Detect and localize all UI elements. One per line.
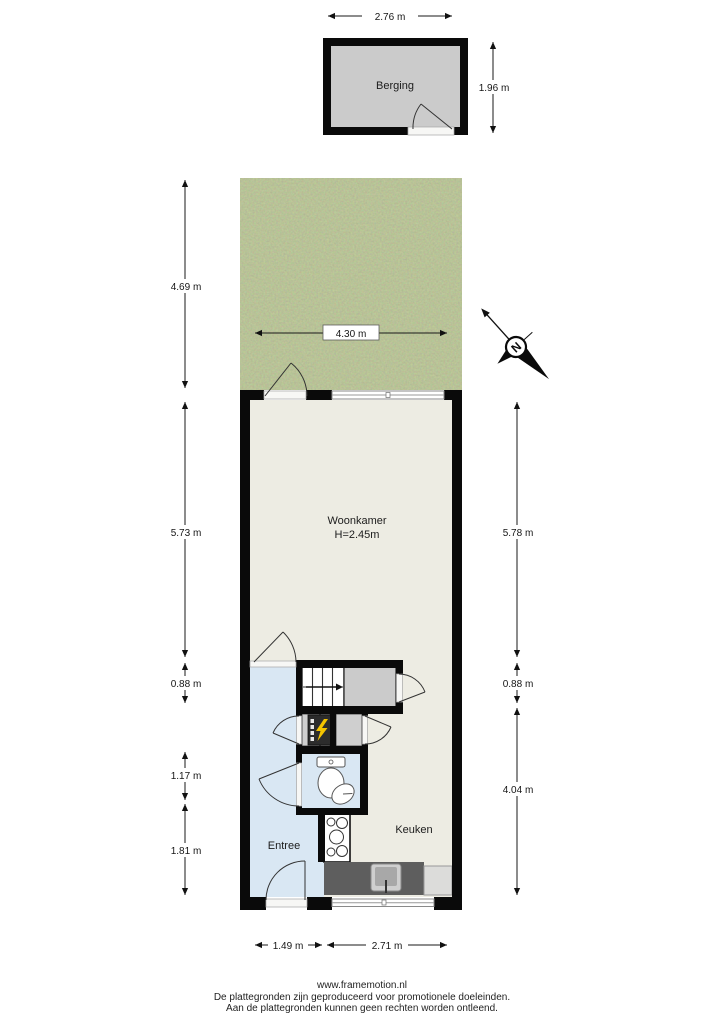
dim-bottom-1-label: 1.49 m bbox=[273, 941, 304, 952]
berging-door-threshold bbox=[408, 127, 454, 135]
toilet-door-threshold bbox=[297, 763, 302, 806]
dim-left-4-label: 1.81 m bbox=[171, 846, 202, 857]
wall-segment bbox=[330, 714, 336, 746]
toilet-room bbox=[302, 754, 360, 808]
floorplan-canvas: Berging 2.76 m 1.96 m 4.69 m 4.30 m N bbox=[0, 0, 724, 1024]
dim-right-3-label: 4.04 m bbox=[503, 785, 534, 796]
dim-left-2-label: 0.88 m bbox=[171, 679, 202, 690]
berging-depth-label: 1.96 m bbox=[479, 83, 510, 94]
house-dimensions-right: 5.78 m 0.88 m 4.04 m bbox=[498, 402, 537, 895]
woonkamer-door-threshold bbox=[250, 661, 296, 667]
wall-top-segment bbox=[306, 390, 332, 400]
house-dimensions-left: 5.73 m 0.88 m 1.17 m 1.81 m bbox=[166, 402, 205, 895]
wall-bottom-segment bbox=[307, 897, 332, 910]
footer: www.framemotion.nl De plattegronden zijn… bbox=[214, 980, 510, 1014]
wall-bottom-segment bbox=[240, 897, 266, 910]
floor-entree-lower bbox=[250, 814, 324, 897]
window-rear-tick bbox=[386, 393, 390, 398]
wall-toilet-right bbox=[360, 754, 368, 815]
wall-left bbox=[240, 390, 250, 910]
wall-stove-left bbox=[318, 815, 325, 862]
front-door-threshold bbox=[266, 899, 307, 907]
wall-segment bbox=[396, 702, 403, 714]
wall-toilet-top bbox=[296, 746, 368, 754]
compass-east-tick bbox=[524, 332, 532, 339]
wall-segment bbox=[362, 708, 368, 716]
footer-disclaimer-line1: De plattegronden zijn geproduceerd voor … bbox=[214, 992, 510, 1003]
garden-width-label: 4.30 m bbox=[336, 329, 367, 340]
wall-woonkamer-divider bbox=[296, 660, 403, 668]
compass-north-icon: N bbox=[463, 294, 564, 398]
dim-left-3-label: 1.17 m bbox=[171, 771, 202, 782]
dim-bottom-2-label: 2.71 m bbox=[372, 941, 403, 952]
wall-toilet-bottom bbox=[296, 808, 368, 815]
berging-unit: Berging bbox=[323, 38, 468, 135]
entree-label: Entree bbox=[268, 840, 300, 852]
meterkast-door-threshold bbox=[297, 716, 302, 744]
wall-segment bbox=[396, 660, 403, 674]
wall-right bbox=[452, 390, 462, 910]
staircase bbox=[302, 667, 344, 707]
keuken-label: Keuken bbox=[395, 824, 432, 836]
wall-top-segment bbox=[240, 390, 264, 400]
closet-door-threshold bbox=[397, 674, 403, 702]
toilet-cistern bbox=[317, 757, 345, 767]
floorplan-page: Berging 2.76 m 1.96 m 4.69 m 4.30 m N bbox=[0, 0, 724, 1024]
dim-right-2-label: 0.88 m bbox=[503, 679, 534, 690]
wall-under-stairs bbox=[296, 706, 403, 714]
house: Woonkamer H=2.45m Entree Keuken bbox=[240, 363, 462, 910]
house-dimensions-bottom: 1.49 m 2.71 m bbox=[255, 938, 447, 952]
footer-website: www.framemotion.nl bbox=[316, 980, 407, 991]
garden-door-threshold bbox=[264, 391, 306, 399]
footer-disclaimer-line2: Aan de plattegronden kunnen geen rechten… bbox=[226, 1003, 498, 1014]
garden: 4.69 m 4.30 m bbox=[167, 178, 462, 390]
dim-left-1-label: 5.73 m bbox=[171, 528, 202, 539]
garden-grass-texture bbox=[240, 178, 462, 390]
garden-depth-label: 4.69 m bbox=[171, 282, 202, 293]
kitchen-appliance-block bbox=[424, 866, 452, 895]
dim-right-1-label: 5.78 m bbox=[503, 528, 534, 539]
wall-top-segment bbox=[444, 390, 462, 400]
woonkamer-label: Woonkamer bbox=[327, 515, 386, 527]
woonkamer-ceiling-label: H=2.45m bbox=[335, 529, 380, 541]
berging-label: Berging bbox=[376, 80, 414, 92]
berging-width-label: 2.76 m bbox=[375, 12, 406, 23]
cell2-door-threshold bbox=[363, 716, 368, 744]
window-front-tick bbox=[382, 900, 386, 905]
wall-bottom-segment bbox=[434, 897, 462, 910]
meterkast-cell-right bbox=[336, 714, 362, 746]
closet-trapkast bbox=[344, 667, 396, 707]
